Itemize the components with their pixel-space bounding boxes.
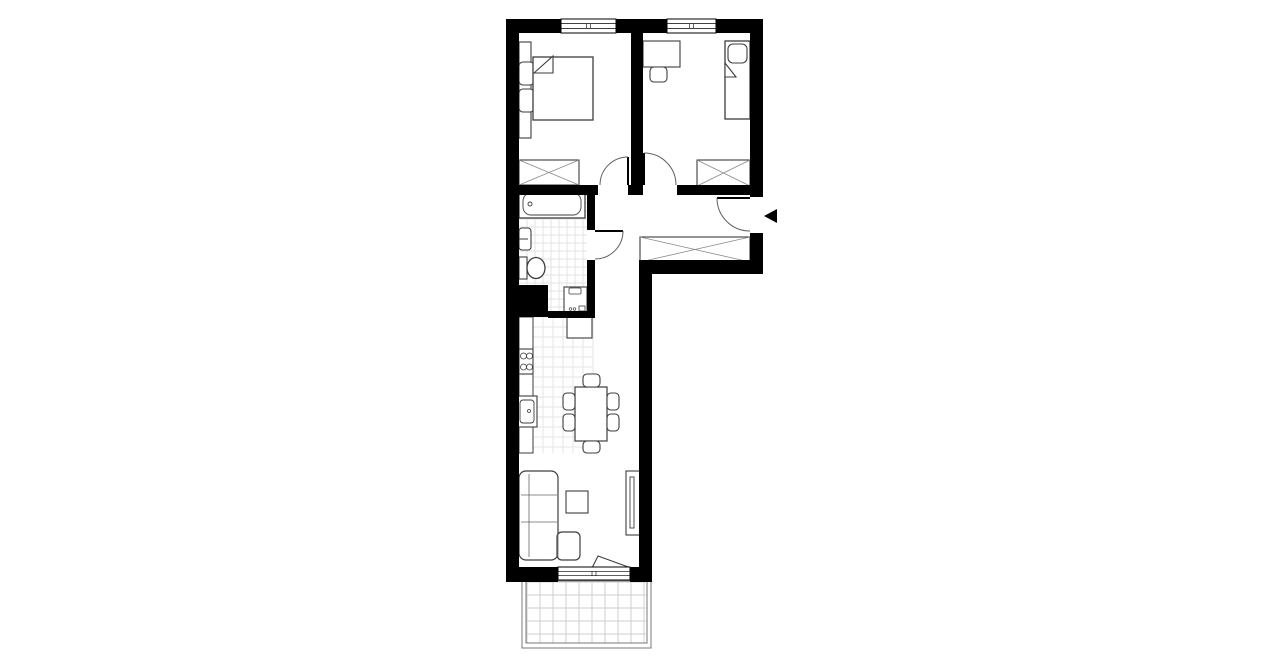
balcony-door-leaf [592, 556, 631, 568]
sofa-chaise [557, 532, 580, 560]
stove-burner4 [527, 364, 533, 370]
dining-chair-left-1 [563, 393, 575, 410]
balcony-outline-outer [522, 581, 651, 648]
toilet-tank [519, 257, 527, 279]
wall-corridor-bottom [639, 260, 763, 274]
bathtub-drain [528, 202, 532, 206]
wall-top [506, 19, 763, 33]
coffee-table [566, 491, 588, 513]
door-bedroom2-swing [644, 153, 676, 185]
wall-bathroom-bottom [548, 311, 595, 318]
entrance-opening [750, 197, 763, 233]
washing-machine-door [579, 306, 585, 311]
wall-bedroom-divider [631, 33, 643, 195]
tv [630, 477, 634, 528]
wall-hall-right [677, 185, 750, 195]
entrance-marker [764, 209, 777, 223]
stove-burner3 [521, 364, 527, 370]
single-bed-pillow [728, 44, 747, 63]
kitchen-sink-drain [528, 410, 531, 413]
washing-machine-drawer [569, 288, 581, 294]
dining-chair-right-1 [607, 393, 619, 410]
door-bathroom-swing [595, 231, 623, 259]
sofa-main [519, 471, 558, 560]
wall-bathroom-lower [587, 260, 595, 318]
wall-bottom-left [506, 567, 558, 582]
wall-bathroom-upper [587, 195, 595, 230]
dining-chair-bottom [583, 441, 600, 453]
floor-plan [0, 0, 1280, 667]
washing-machine-knob2 [573, 308, 576, 311]
bed1-nightstand-bottom [519, 89, 534, 112]
dining-chair-right-2 [607, 414, 619, 431]
floor-plan-svg [0, 0, 1280, 667]
wall-bottom-right [630, 567, 652, 582]
kitchen-sink-basin [520, 400, 534, 423]
door-bedroom1-swing [600, 157, 628, 185]
wall-column-right [639, 260, 652, 582]
window-bedroom2 [667, 19, 716, 33]
wall-hall-mid [628, 185, 643, 195]
wall-right [750, 19, 763, 274]
toilet-bowl [527, 258, 545, 279]
stove [519, 349, 533, 374]
door-entrance-swing [717, 198, 750, 231]
wall-hall-left [519, 185, 598, 195]
wall-bathroom-block [506, 285, 548, 317]
desk-chair [650, 67, 667, 82]
window-bedroom1 [561, 19, 616, 33]
dining-table [575, 387, 607, 441]
washing-machine-knob1 [569, 308, 572, 311]
bed1-nightstand-top [519, 62, 534, 85]
kitchen-counter [519, 317, 533, 453]
stove-burner1 [521, 353, 527, 359]
kitchen-tall-unit [567, 317, 592, 338]
desk [643, 41, 680, 67]
dining-chair-left-2 [563, 414, 575, 431]
stove-burner2 [527, 353, 533, 359]
balcony-door-window [558, 567, 630, 580]
dining-chair-top [583, 374, 600, 387]
